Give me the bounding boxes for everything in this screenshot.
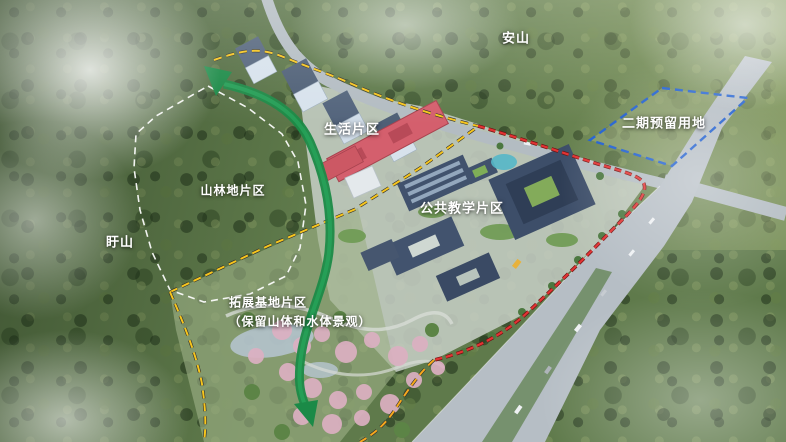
label-expansion-zone-note: （保留山体和水体景观） xyxy=(228,313,371,330)
label-anshan-mountain: 安山 xyxy=(502,28,530,47)
label-teaching-zone: 公共教学片区 xyxy=(420,198,504,217)
label-phase2-reserved-land: 二期预留用地 xyxy=(622,113,706,132)
label-xushan-mountain: 盱山 xyxy=(106,232,134,251)
label-living-zone: 生活片区 xyxy=(324,119,380,138)
atmospheric-haze xyxy=(0,0,786,442)
campus-master-plan-aerial: 安山 二期预留用地 生活片区 山林地片区 盱山 公共教学片区 拓展基地片区 （保… xyxy=(0,0,786,442)
label-expansion-zone-title: 拓展基地片区 xyxy=(229,294,307,311)
label-forest-zone: 山林地片区 xyxy=(200,182,265,199)
